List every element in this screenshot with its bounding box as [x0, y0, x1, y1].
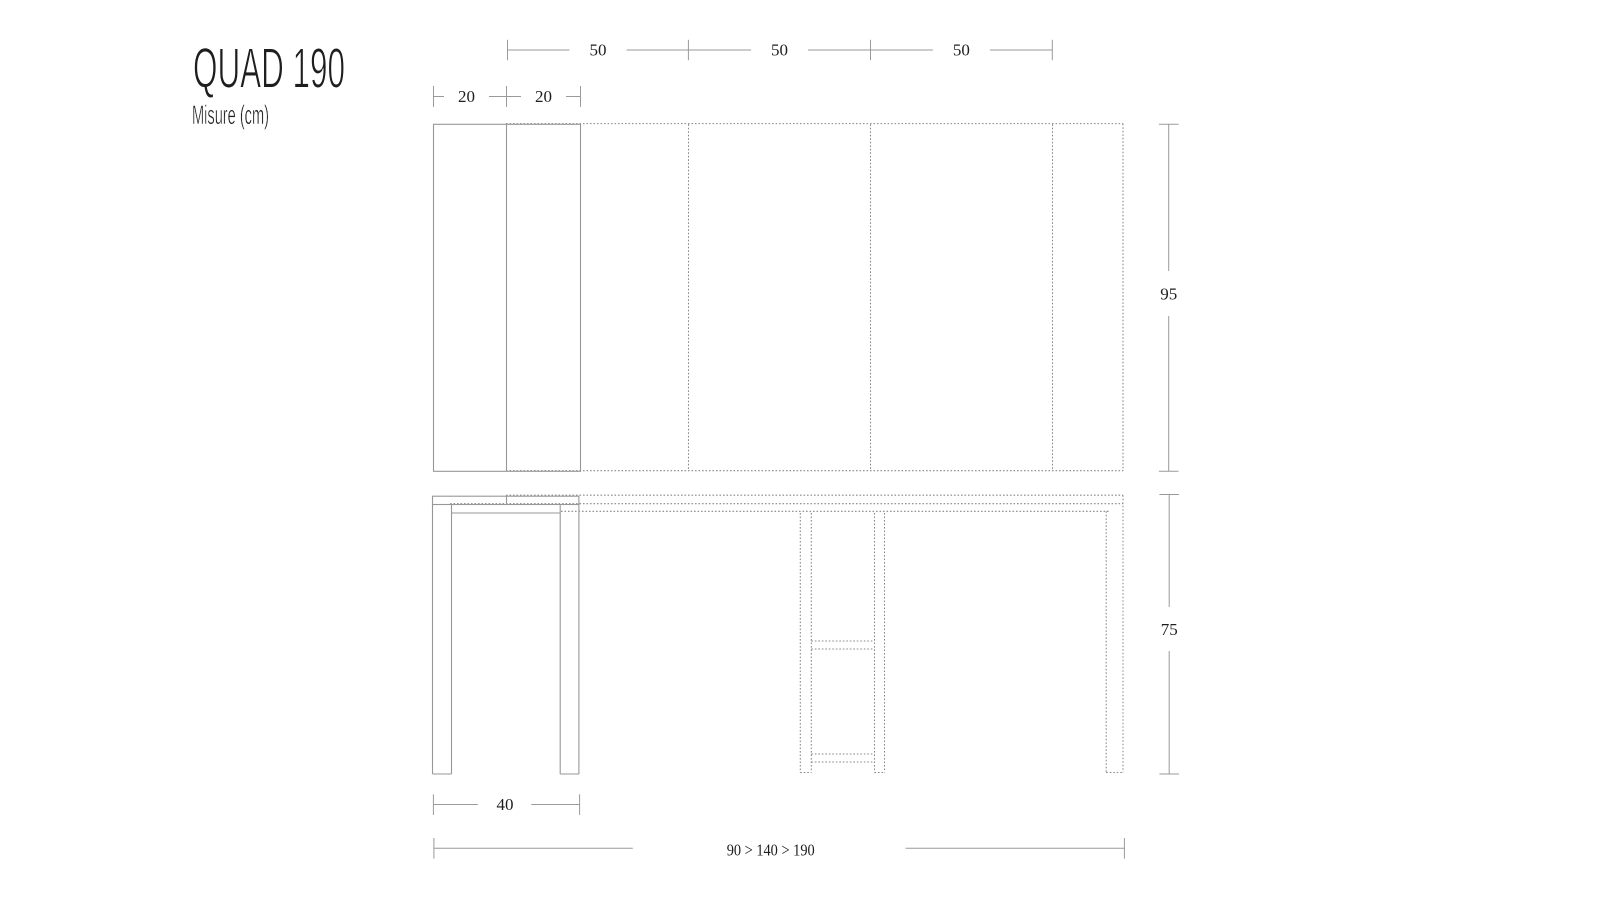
- svg-text:90 > 140 > 190: 90 > 140 > 190: [727, 841, 815, 860]
- svg-text:20: 20: [458, 87, 475, 106]
- svg-text:50: 50: [953, 41, 970, 60]
- svg-text:75: 75: [1161, 620, 1178, 639]
- svg-text:QUAD 190: QUAD 190: [193, 37, 345, 100]
- svg-text:40: 40: [497, 795, 514, 814]
- svg-text:95: 95: [1160, 285, 1177, 304]
- svg-text:50: 50: [771, 41, 788, 60]
- svg-text:50: 50: [590, 41, 607, 60]
- svg-text:20: 20: [535, 87, 552, 106]
- svg-text:Misure (cm): Misure (cm): [192, 100, 269, 130]
